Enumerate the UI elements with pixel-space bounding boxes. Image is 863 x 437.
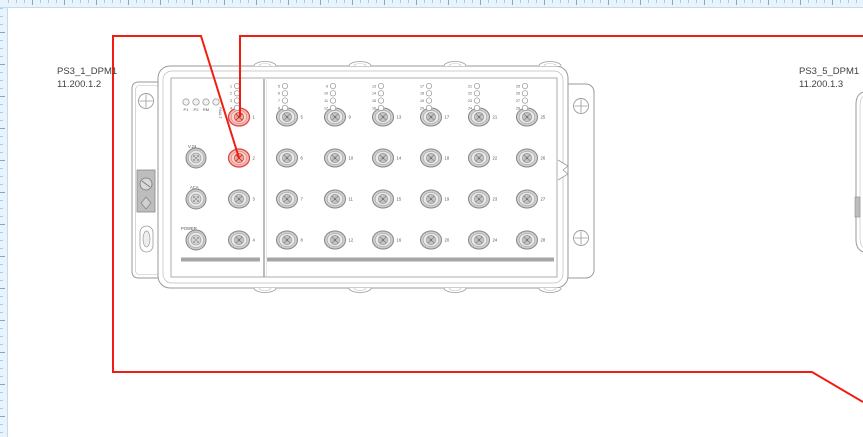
- port-number: 25: [541, 115, 546, 120]
- ruler-tick: [0, 304, 3, 305]
- port-10[interactable]: [325, 149, 346, 167]
- ruler-tick: [0, 112, 3, 113]
- ruler-tick: [528, 0, 529, 3]
- port-center-pin: [334, 198, 336, 200]
- ruler-tick: [840, 0, 841, 3]
- port-led-number: 23: [468, 99, 472, 103]
- port-led-number: 2: [230, 92, 232, 96]
- ruler-tick: [192, 0, 193, 5]
- port-center-pin: [526, 116, 528, 118]
- ruler-tick: [592, 0, 593, 3]
- port-4[interactable]: [229, 231, 250, 249]
- ruler-tick: [0, 96, 5, 97]
- port-led-number: 6: [278, 92, 280, 96]
- port-number: 16: [397, 238, 402, 243]
- port-19[interactable]: [421, 190, 442, 208]
- device-2-ip: 11.200.1.3: [799, 79, 859, 92]
- connector-pin: [193, 237, 195, 239]
- port-led-25: [522, 83, 527, 88]
- ruler-tick: [0, 136, 3, 137]
- port-27[interactable]: [517, 190, 538, 208]
- port-led-number: 26: [516, 92, 520, 96]
- ruler-tick: [8, 0, 9, 3]
- port-center-pin: [334, 116, 336, 118]
- ruler-tick: [424, 0, 425, 3]
- port-center-pin: [238, 198, 240, 200]
- ruler-tick: [0, 104, 3, 105]
- ruler-tick: [0, 336, 3, 337]
- ruler-tick: [752, 0, 753, 3]
- device-2-label[interactable]: PS3_5_DPM1 11.200.1.3: [799, 66, 859, 91]
- ruler-tick: [0, 312, 3, 313]
- port-led-22: [474, 91, 479, 96]
- ruler-tick: [0, 128, 5, 129]
- port-number: 14: [397, 156, 402, 161]
- ruler-tick: [640, 0, 641, 5]
- ruler-tick: [600, 0, 601, 3]
- status-led-label-fault: FAULT: [218, 107, 222, 119]
- port-center-pin: [334, 157, 336, 159]
- ruler-tick: [0, 168, 3, 169]
- ruler-tick: [80, 0, 81, 3]
- device-ps3-1-dpm1[interactable]: P1P2RMFAULTV.24ACAPOWER11223344556677889…: [132, 62, 594, 293]
- port-led-number: 11: [324, 99, 328, 103]
- ruler-tick: [776, 0, 777, 3]
- port-center-pin: [382, 198, 384, 200]
- port-number: 26: [541, 156, 546, 161]
- connector-pin: [197, 159, 199, 161]
- port-led-12: [330, 105, 335, 110]
- ruler-tick: [160, 0, 161, 5]
- ruler-tick: [40, 0, 41, 3]
- ruler-tick: [760, 0, 761, 3]
- ruler-tick: [464, 0, 465, 3]
- port-led-4: [234, 105, 239, 110]
- port-20[interactable]: [421, 231, 442, 249]
- ruler-tick: [656, 0, 657, 3]
- port-led-8: [282, 105, 287, 110]
- ruler-tick: [0, 72, 3, 73]
- ruler-tick: [168, 0, 169, 3]
- port-number: 24: [493, 238, 498, 243]
- bottom-bar: [181, 258, 260, 262]
- ruler-tick: [488, 0, 489, 3]
- port-number: 23: [493, 197, 498, 202]
- port-16[interactable]: [373, 231, 394, 249]
- port-center-pin: [478, 157, 480, 159]
- ruler-tick: [568, 0, 569, 3]
- ruler-tick: [128, 0, 129, 5]
- ruler-tick: [360, 0, 361, 3]
- port-number: 18: [445, 156, 450, 161]
- ruler-tick: [0, 384, 5, 385]
- ruler-tick: [648, 0, 649, 3]
- connector-pin: [193, 155, 195, 157]
- ruler-tick: [808, 0, 809, 3]
- port-number: 20: [445, 238, 450, 243]
- ruler-tick: [0, 416, 5, 417]
- ruler-tick: [208, 0, 209, 3]
- ruler-tick: [0, 152, 3, 153]
- ruler-tick: [824, 0, 825, 3]
- ruler-tick: [480, 0, 481, 5]
- port-number: 11: [349, 197, 354, 202]
- ruler-tick: [400, 0, 401, 3]
- ruler-tick: [456, 0, 457, 3]
- ruler-tick: [736, 0, 737, 5]
- ruler-tick: [96, 0, 97, 5]
- ruler-tick: [0, 64, 5, 65]
- port-led-23: [474, 98, 479, 103]
- ruler-tick: [504, 0, 505, 3]
- vertical-ruler[interactable]: [0, 0, 8, 437]
- port-led-number: 10: [324, 92, 328, 96]
- ruler-tick: [48, 0, 49, 3]
- device2-clip: [855, 197, 860, 217]
- ruler-tick: [0, 288, 5, 289]
- ruler-tick: [0, 352, 5, 353]
- port-center-pin: [526, 239, 528, 241]
- port-center-pin: [382, 116, 384, 118]
- ruler-tick: [376, 0, 377, 3]
- ruler-tick: [680, 0, 681, 3]
- connector-pin: [197, 155, 199, 157]
- port-5[interactable]: [277, 108, 298, 126]
- port-led-number: 8: [278, 106, 280, 110]
- ruler-tick: [24, 0, 25, 3]
- ruler-tick: [336, 0, 337, 3]
- ruler-tick: [72, 0, 73, 3]
- port-7[interactable]: [277, 190, 298, 208]
- port-led-number: 19: [420, 99, 424, 103]
- ruler-tick: [728, 0, 729, 3]
- ruler-tick: [448, 0, 449, 5]
- port-number: 17: [445, 115, 450, 120]
- ruler-tick: [232, 0, 233, 3]
- status-led-p1: [183, 99, 189, 105]
- ruler-tick: [0, 208, 3, 209]
- diagram-text: FAULT: [218, 107, 222, 119]
- port-number: 13: [397, 115, 402, 120]
- port-led-number: 3: [230, 99, 232, 103]
- port-center-pin: [430, 116, 432, 118]
- ruler-tick: [0, 224, 5, 225]
- ruler-tick: [0, 296, 3, 297]
- connector-pin: [197, 200, 199, 202]
- port-led-13: [378, 83, 383, 88]
- port-18[interactable]: [421, 149, 442, 167]
- ruler-tick: [0, 424, 3, 425]
- ruler-tick: [0, 344, 3, 345]
- ruler-tick: [56, 0, 57, 3]
- status-led-rm: [203, 99, 209, 105]
- ruler-tick: [144, 0, 145, 3]
- port-24[interactable]: [469, 231, 490, 249]
- ruler-tick: [560, 0, 561, 3]
- port-9[interactable]: [325, 108, 346, 126]
- port-center-pin: [478, 116, 480, 118]
- ruler-tick: [0, 184, 3, 185]
- port-led-19: [426, 98, 431, 103]
- ruler-tick: [552, 0, 553, 3]
- port-led-27: [522, 98, 527, 103]
- port-led-18: [426, 91, 431, 96]
- connector-pin: [193, 200, 195, 202]
- ruler-tick: [136, 0, 137, 3]
- connector-pin: [197, 196, 199, 198]
- ruler-tick: [784, 0, 785, 3]
- ruler-tick: [704, 0, 705, 5]
- ruler-tick: [856, 0, 857, 3]
- ruler-tick: [0, 264, 3, 265]
- port-led-number: 9: [326, 84, 328, 88]
- port-led-number: 15: [372, 99, 376, 103]
- ruler-tick: [200, 0, 201, 3]
- port-center-pin: [286, 116, 288, 118]
- port-led-28: [522, 105, 527, 110]
- ruler-tick: [416, 0, 417, 5]
- ruler-tick: [0, 400, 3, 401]
- ruler-tick: [848, 0, 849, 3]
- port-led-24: [474, 105, 479, 110]
- port-number: 28: [541, 238, 546, 243]
- ruler-tick: [0, 80, 3, 81]
- ruler-tick: [296, 0, 297, 3]
- ruler-tick: [0, 280, 3, 281]
- port-led-3: [234, 98, 239, 103]
- ruler-tick: [0, 368, 3, 369]
- ruler-tick: [256, 0, 257, 5]
- ruler-tick: [688, 0, 689, 3]
- port-12[interactable]: [325, 231, 346, 249]
- device-1-name: PS3_1_DPM1: [57, 66, 117, 79]
- device-faceplate: [171, 78, 557, 277]
- connector-pin: [195, 198, 197, 200]
- ruler-tick: [624, 0, 625, 3]
- port-center-pin: [286, 239, 288, 241]
- ruler-tick: [0, 176, 3, 177]
- status-led-fault: [213, 99, 219, 105]
- ruler-tick: [0, 392, 3, 393]
- ruler-tick: [280, 0, 281, 3]
- ruler-tick: [536, 0, 537, 3]
- port-led-number: 4: [230, 106, 232, 110]
- port-17[interactable]: [421, 108, 442, 126]
- port-led-number: 28: [516, 106, 520, 110]
- connector-pin: [197, 237, 199, 239]
- ruler-tick: [368, 0, 369, 3]
- port-center-pin: [382, 239, 384, 241]
- port-led-number: 5: [278, 84, 280, 88]
- ruler-tick: [184, 0, 185, 3]
- ruler-tick: [304, 0, 305, 3]
- port-led-5: [282, 83, 287, 88]
- port-led-7: [282, 98, 287, 103]
- port-28[interactable]: [517, 231, 538, 249]
- connector-pin: [197, 241, 199, 243]
- ruler-tick: [0, 88, 3, 89]
- ruler-tick: [0, 240, 3, 241]
- port-11[interactable]: [325, 190, 346, 208]
- port-13[interactable]: [373, 108, 394, 126]
- port-led-9: [330, 83, 335, 88]
- port-center-pin: [238, 239, 240, 241]
- port-center-pin: [478, 198, 480, 200]
- ruler-tick: [432, 0, 433, 3]
- ruler-tick: [248, 0, 249, 3]
- ruler-tick: [240, 0, 241, 3]
- ruler-tick: [800, 0, 801, 5]
- port-14[interactable]: [373, 149, 394, 167]
- ruler-tick: [512, 0, 513, 5]
- connector-pin: [195, 157, 197, 159]
- device-2-name: PS3_5_DPM1: [799, 66, 859, 79]
- port-led-21: [474, 83, 479, 88]
- ruler-tick: [440, 0, 441, 3]
- ruler-tick: [0, 200, 3, 201]
- ruler-tick: [712, 0, 713, 3]
- port-led-number: 7: [278, 99, 280, 103]
- ruler-tick: [344, 0, 345, 3]
- ruler-tick: [0, 160, 5, 161]
- port-center-pin: [430, 157, 432, 159]
- port-led-10: [330, 91, 335, 96]
- port-23[interactable]: [469, 190, 490, 208]
- port-led-number: 20: [420, 106, 424, 110]
- diagram-canvas[interactable]: P1P2RMFAULTV.24ACAPOWER11223344556677889…: [0, 0, 863, 437]
- ruler-tick: [816, 0, 817, 3]
- status-led-label: P2: [194, 107, 200, 112]
- port-center-pin: [478, 239, 480, 241]
- connector-pin: [193, 159, 195, 161]
- ruler-tick: [16, 0, 17, 3]
- port-15[interactable]: [373, 190, 394, 208]
- ruler-tick: [632, 0, 633, 3]
- ruler-tick: [584, 0, 585, 3]
- port-led-number: 24: [468, 106, 472, 110]
- ruler-tick: [0, 32, 5, 33]
- port-led-number: 27: [516, 99, 520, 103]
- port-22[interactable]: [469, 149, 490, 167]
- device-1-label[interactable]: PS3_1_DPM1 11.200.1.2: [57, 66, 117, 91]
- port-number: 19: [445, 197, 450, 202]
- ruler-tick: [0, 256, 5, 257]
- port-led-1: [234, 83, 239, 88]
- ruler-tick: [0, 376, 3, 377]
- port-center-pin: [382, 157, 384, 159]
- port-center-pin: [430, 239, 432, 241]
- ruler-tick: [0, 360, 3, 361]
- ruler-tick: [272, 0, 273, 3]
- ruler-tick: [0, 24, 3, 25]
- port-led-11: [330, 98, 335, 103]
- status-led-p2: [193, 99, 199, 105]
- ruler-tick: [264, 0, 265, 3]
- port-led-number: 22: [468, 92, 472, 96]
- port-number: 27: [541, 197, 546, 202]
- ruler-tick: [0, 40, 3, 41]
- port-led-number: 17: [420, 84, 424, 88]
- port-led-16: [378, 105, 383, 110]
- port-center-pin: [430, 198, 432, 200]
- port-number: 22: [493, 156, 498, 161]
- ruler-tick: [0, 432, 3, 433]
- ruler-tick: [0, 48, 3, 49]
- ruler-tick: [664, 0, 665, 3]
- ruler-tick: [120, 0, 121, 3]
- ruler-tick: [520, 0, 521, 3]
- ruler-tick: [0, 120, 3, 121]
- port-6[interactable]: [277, 149, 298, 167]
- ruler-tick: [152, 0, 153, 3]
- ruler-tick: [0, 56, 3, 57]
- port-led-number: 13: [372, 84, 376, 88]
- port-number: 12: [349, 238, 354, 243]
- ruler-tick: [384, 0, 385, 5]
- ruler-tick: [768, 0, 769, 5]
- ruler-tick: [0, 272, 3, 273]
- horizontal-ruler[interactable]: [0, 0, 863, 8]
- port-26[interactable]: [517, 149, 538, 167]
- ruler-tick: [0, 144, 3, 145]
- port-led-number: 25: [516, 84, 520, 88]
- ruler-tick: [616, 0, 617, 3]
- port-3[interactable]: [229, 190, 250, 208]
- connector-pin: [195, 239, 197, 241]
- device-1-ip: 11.200.1.2: [57, 79, 117, 92]
- port-led-20: [426, 105, 431, 110]
- ruler-tick: [576, 0, 577, 5]
- port-led-number: 18: [420, 92, 424, 96]
- ruler-tick: [0, 8, 3, 9]
- ruler-tick: [0, 328, 3, 329]
- port-led-6: [282, 91, 287, 96]
- ruler-tick: [32, 0, 33, 5]
- ruler-tick: [288, 0, 289, 5]
- ruler-tick: [0, 408, 3, 409]
- ruler-tick: [472, 0, 473, 3]
- ruler-tick: [328, 0, 329, 3]
- ruler-tick: [320, 0, 321, 5]
- port-center-pin: [286, 198, 288, 200]
- ruler-tick: [392, 0, 393, 3]
- port-led-2: [234, 91, 239, 96]
- ruler-tick: [224, 0, 225, 5]
- ruler-tick: [64, 0, 65, 5]
- ruler-tick: [0, 216, 3, 217]
- ruler-tick: [0, 248, 3, 249]
- port-led-number: 21: [468, 84, 472, 88]
- port-8[interactable]: [277, 231, 298, 249]
- port-led-15: [378, 98, 383, 103]
- port-led-26: [522, 91, 527, 96]
- ruler-tick: [0, 320, 5, 321]
- port-led-number: 14: [372, 92, 376, 96]
- port-led-17: [426, 83, 431, 88]
- connector-pin: [193, 241, 195, 243]
- ruler-tick: [696, 0, 697, 3]
- port-number: 15: [397, 197, 402, 202]
- ruler-tick: [672, 0, 673, 5]
- port-number: 21: [493, 115, 498, 120]
- mount-slot-hole: [143, 231, 150, 247]
- device-ps3-5-dpm1-partial[interactable]: [855, 92, 863, 252]
- port-25[interactable]: [517, 108, 538, 126]
- port-center-pin: [286, 157, 288, 159]
- ruler-tick: [176, 0, 177, 3]
- port-21[interactable]: [469, 108, 490, 126]
- ruler-tick: [744, 0, 745, 3]
